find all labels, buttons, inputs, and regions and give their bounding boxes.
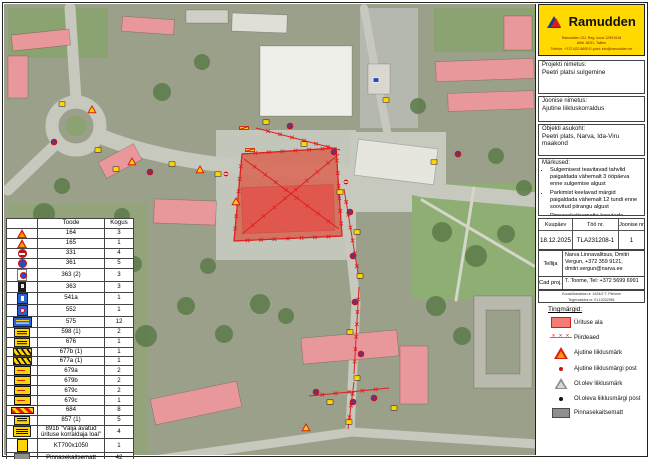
sign-code: 552	[38, 305, 105, 317]
sign-table-row: 679c2	[7, 386, 134, 396]
work-number-value: TLA231208-1	[573, 231, 619, 249]
sign-quantity: 42	[105, 453, 134, 459]
sign-code: 684	[38, 406, 105, 415]
object-location-label: Objekti asukoht:	[542, 126, 641, 132]
sign-table-row: 677b (1)1	[7, 348, 134, 357]
sign-quantity: 4	[105, 249, 134, 259]
object-location-box: Objekti asukoht: Peetri plats, Narva, Id…	[538, 124, 645, 156]
sign-table-row: Pinnasekaitsematt42	[7, 453, 134, 459]
icon-column-header	[7, 219, 38, 229]
toode-column-header: Toode	[38, 219, 105, 229]
sign-icon	[14, 366, 31, 375]
temp-sign-icon	[554, 347, 568, 359]
sign-icon	[14, 386, 31, 395]
legend-item: Pinnasekaitsematt	[548, 408, 645, 418]
sign-table-row: 1651	[7, 239, 134, 249]
sign-code: 598 (1)	[38, 328, 105, 338]
sign-quantity: 3	[105, 269, 134, 282]
sign-table-row: 679c1	[7, 396, 134, 406]
legend-item: Ajutine liiklusmärk	[548, 347, 645, 359]
sign-icon	[17, 269, 27, 281]
sign-code: 331	[38, 249, 105, 259]
drawing-meta-grid: Kuupäev Töö nr. Joonise nr 18.12.2025 TL…	[538, 218, 645, 250]
sign-code: 575	[38, 317, 105, 328]
sign-table-row: 679b2	[7, 376, 134, 386]
sign-table-row: 6761	[7, 338, 134, 348]
sign-code: KT700x1050	[38, 439, 105, 453]
sign-code: 541a	[38, 293, 105, 305]
legend-item-label: Ajutine liiklusmärk	[574, 350, 622, 356]
sign-code: 679c	[38, 386, 105, 396]
sign-quantity: 2	[105, 366, 134, 376]
sign-code: 164	[38, 229, 105, 239]
sign-code: 679c	[38, 396, 105, 406]
approval-footnote: Kooskõlastatus nr. 1634/2 T. PärnmeTegev…	[538, 290, 645, 303]
project-name-box: Projekti nimetus: Peetri platsi sulgemin…	[538, 60, 645, 94]
notes-list: Sulgemisest teavitavad tahvlid paigaldad…	[550, 167, 641, 216]
client-value: Narva Linnavalitsus, Dmitri Vergun, +372…	[563, 251, 644, 276]
event-area-swatch	[551, 317, 571, 328]
sign-table-row: 363 (2)3	[7, 269, 134, 282]
sheet-number-value: 1	[619, 231, 644, 249]
sign-quantity: 1	[105, 239, 134, 249]
sign-table-row: KT700x10501	[7, 439, 134, 453]
legend-item-label: Ajutine liiklusmärgi post	[574, 366, 637, 372]
notes-box: Märkused: Sulgemisest teavitavad tahvlid…	[538, 158, 645, 216]
cad-designer-box: Cad proj. T. Toome, Tel: +372 5699 6991	[538, 276, 645, 290]
sign-code: 857 (1)	[38, 415, 105, 425]
client-label: Tellija	[539, 251, 563, 276]
drawing-name-box: Joonise nimetus: Ajutine liikluskorraldu…	[538, 96, 645, 122]
legend-item: Piirdeaed	[548, 335, 645, 341]
sign-quantity: 8	[105, 406, 134, 415]
sign-table-row: 1643	[7, 229, 134, 239]
legend-item-label: Pinnasekaitsematt	[574, 410, 623, 416]
sign-icon	[14, 328, 30, 337]
sign-quantity: 1	[105, 396, 134, 406]
sign-icon	[14, 453, 30, 459]
sign-quantity: 1	[105, 305, 134, 317]
sign-code: 676	[38, 338, 105, 348]
sign-icon	[17, 305, 28, 316]
legend-title: Tingmärgid:	[548, 306, 645, 313]
sign-quantity: 1	[105, 357, 134, 366]
sign-code: 679a	[38, 366, 105, 376]
legend-item: Ürituse ala	[548, 317, 645, 328]
sign-table-row: 3314	[7, 249, 134, 259]
sign-table-row: 3615	[7, 259, 134, 269]
legend-item: Ajutine liiklusmärgi post	[548, 366, 645, 372]
existing-post-icon	[559, 397, 563, 401]
drawing-name-label: Joonise nimetus:	[542, 98, 641, 104]
sign-quantity: 3	[105, 282, 134, 293]
sign-icon	[17, 239, 27, 248]
sign-quantity: 2	[105, 386, 134, 396]
project-name-label: Projekti nimetus:	[542, 62, 641, 68]
sign-table-row: 6848	[7, 406, 134, 415]
plan-sheet: Ramudden Ramudden OÜ, Reg. kood 12991918…	[0, 0, 650, 459]
cad-designer-label: Cad proj.	[539, 277, 563, 289]
sign-quantity: 1	[105, 293, 134, 305]
sign-code: 363	[38, 282, 105, 293]
sign-code: 677a (1)	[38, 357, 105, 366]
sign-icon	[18, 282, 26, 292]
sign-code: 891b "Välja avatud ürituse korraldaja lo…	[38, 425, 105, 439]
drawing-name-value: Ajutine liikluskorraldus	[542, 105, 641, 112]
legend-item-label: Ol.olev liiklusmärk	[574, 381, 622, 387]
notes-label: Märkused:	[542, 160, 641, 166]
temp-sign-post-icon	[559, 367, 563, 371]
kogus-column-header: Kogus	[105, 219, 134, 229]
sign-icon	[18, 249, 27, 258]
sign-icon	[18, 259, 27, 268]
client-box: Tellija Narva Linnavalitsus, Dmitri Verg…	[538, 250, 645, 277]
note-item: Sulgemisest teavitavad tahvlid paigaldad…	[550, 167, 641, 188]
legend-item-label: Piirdeaed	[574, 335, 599, 341]
project-name-value: Peetri platsi sulgemine	[542, 69, 641, 76]
sign-code: Pinnasekaitsematt	[38, 453, 105, 459]
title-block-panel: Ramudden Ramudden OÜ, Reg. kood 12991918…	[535, 4, 647, 455]
sign-table-row: 57512	[7, 317, 134, 328]
note-item: Parkimist keelavad märgid paigaldada väh…	[550, 190, 641, 211]
legend-item-label: Ürituse ala	[574, 320, 603, 326]
existing-sign-icon	[555, 378, 568, 389]
legend-item: Ol.olev liiklusmärk	[548, 378, 645, 389]
sign-icon	[14, 396, 31, 405]
sign-icon	[17, 293, 28, 304]
ground-mat-swatch	[552, 408, 570, 418]
sign-icon	[14, 338, 30, 347]
sign-icon	[11, 407, 34, 414]
sign-icon	[14, 376, 31, 385]
sign-table-row: 857 (1)5	[7, 415, 134, 425]
sign-code: 361	[38, 259, 105, 269]
sign-table-row: 541a1	[7, 293, 134, 305]
sign-quantity: 3	[105, 229, 134, 239]
sign-table-row: 5521	[7, 305, 134, 317]
sheet-number-label: Joonise nr	[619, 219, 644, 231]
legend: Tingmärgid: Ürituse alaPiirdeaedAjutine …	[548, 306, 645, 425]
note-item: Pinnasekaitsematte kasutada vajadusel	[550, 213, 641, 216]
sign-icon	[17, 229, 27, 238]
sign-icon	[13, 426, 31, 437]
cad-designer-value: T. Toome, Tel: +372 5699 6991	[563, 277, 644, 289]
fence-line-swatch	[550, 337, 572, 339]
object-location-value: Peetri plats, Narva, Ida-Viru maakond	[542, 133, 641, 147]
sign-table-row: 598 (1)2	[7, 328, 134, 338]
sign-icon	[13, 348, 32, 356]
ramudden-logo-icon	[547, 16, 561, 28]
sign-quantity: 2	[105, 376, 134, 386]
sign-quantity-table: Toode Kogus 1643165133143615363 (2)33633…	[6, 218, 134, 455]
legend-item: Ol.oleva liiklusmärgi post	[548, 396, 645, 402]
sign-icon	[13, 317, 32, 327]
sign-table-row: 677a (1)1	[7, 357, 134, 366]
date-label: Kuupäev	[539, 219, 573, 231]
company-logo-box: Ramudden Ramudden OÜ, Reg. kood 12991918…	[538, 4, 645, 56]
sign-quantity: 4	[105, 425, 134, 439]
sign-code: 679b	[38, 376, 105, 386]
sign-code: 363 (2)	[38, 269, 105, 282]
sign-icon	[17, 439, 28, 452]
work-number-label: Töö nr.	[573, 219, 619, 231]
sign-quantity: 1	[105, 348, 134, 357]
company-name: Ramudden	[569, 14, 636, 29]
sign-table-row: 3633	[7, 282, 134, 293]
date-value: 18.12.2025	[539, 231, 573, 249]
sign-quantity: 2	[105, 328, 134, 338]
sign-quantity: 5	[105, 415, 134, 425]
sign-quantity: 1	[105, 439, 134, 453]
sign-icon	[14, 416, 30, 425]
sign-quantity: 1	[105, 338, 134, 348]
sign-quantity: 5	[105, 259, 134, 269]
sign-code: 677b (1)	[38, 348, 105, 357]
sign-quantity: 12	[105, 317, 134, 328]
sign-table-row: 679a2	[7, 366, 134, 376]
sign-icon	[13, 357, 32, 365]
sign-table-row: 891b "Välja avatud ürituse korraldaja lo…	[7, 425, 134, 439]
sign-code: 165	[38, 239, 105, 249]
legend-item-label: Ol.oleva liiklusmärgi post	[574, 396, 640, 402]
company-contact-info: Ramudden OÜ, Reg. kood 12991918Ahtri 18/…	[539, 36, 644, 52]
